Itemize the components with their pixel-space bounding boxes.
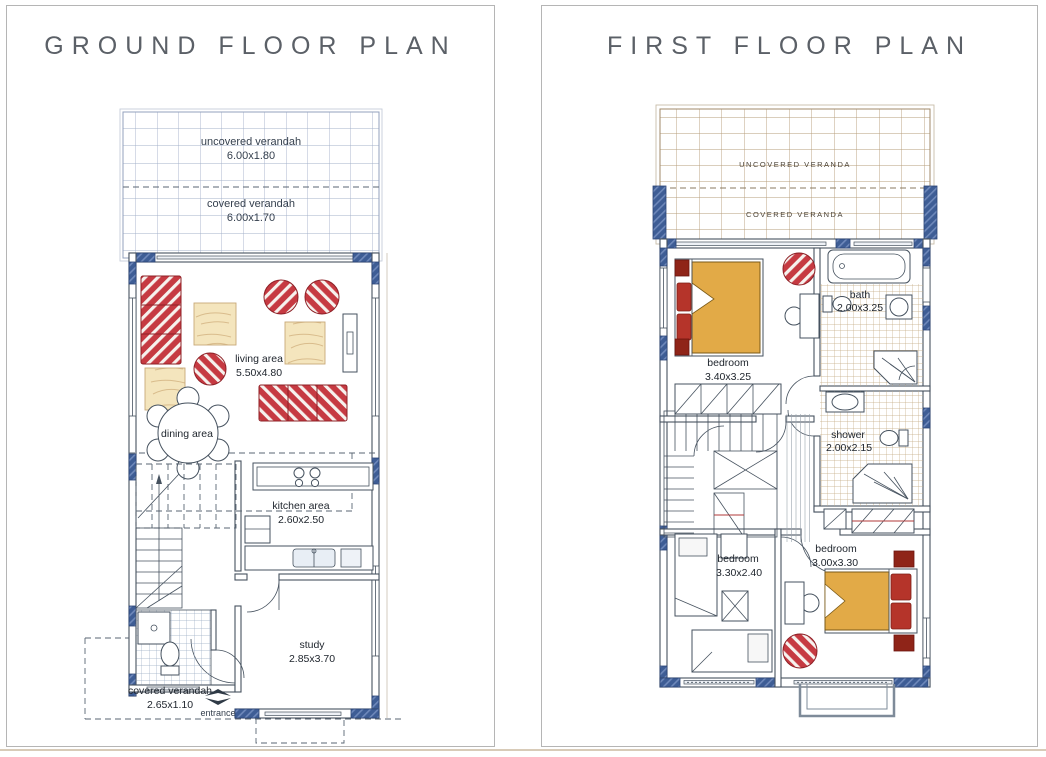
shower-size: 2.00x2.15 (826, 442, 872, 454)
entrance-label: entrance (200, 708, 235, 718)
first-veranda: UNCOVERED VERANDA COVERED VERANDA (653, 105, 937, 244)
dining-area-label: dining area (161, 428, 213, 440)
bedroom-chair (783, 253, 815, 285)
wardrobe (675, 384, 781, 414)
bedroom-left-size: 3.30x2.40 (716, 567, 762, 579)
tv-cabinet (343, 314, 357, 372)
armchair-round (194, 353, 226, 385)
ground-kitchen: kitchen area 2.60x2.50 (245, 463, 373, 570)
bedroom-right-label: bedroom (815, 543, 857, 555)
sofa-left (141, 276, 181, 364)
front-verandah-size: 2.65x1.10 (147, 699, 193, 711)
stove-burner (294, 468, 304, 478)
sofa-bottom (259, 385, 347, 421)
bedroom-left-label: bedroom (717, 553, 759, 565)
covered-verandah-size: 6.00x1.70 (227, 212, 275, 224)
shower-tray (853, 464, 912, 503)
bath-label: bath (850, 289, 871, 301)
bath-size: 2.00x3.25 (837, 302, 883, 314)
ground-wc (136, 610, 211, 685)
first-bath: bath 2.00x3.25 (820, 250, 923, 386)
bath-toilet (823, 296, 832, 312)
ground-verandah-top: uncovered verandah 6.00x1.80 covered ver… (120, 109, 382, 261)
ground-living-area: living area 5.50x4.80 (141, 276, 357, 421)
study-label: study (299, 639, 325, 651)
bedroom-right-chair (783, 634, 817, 668)
first-shower-room: shower 2.00x2.15 (820, 391, 923, 506)
scan-edge-line (0, 749, 1046, 751)
covered-verandah-label: covered verandah (207, 198, 295, 210)
front-verandah-label: covered verandah (128, 685, 212, 697)
kitchen-area-size: 2.60x2.50 (278, 514, 324, 526)
coffee-table (285, 322, 325, 364)
toilet (161, 642, 179, 666)
bedroom-main-label: bedroom (707, 357, 749, 369)
fridge (245, 516, 270, 543)
uncovered-verandah-size: 6.00x1.80 (227, 150, 275, 162)
study-size: 2.85x3.70 (289, 653, 335, 665)
double-bed-main (675, 259, 763, 356)
living-area-label: living area (235, 353, 283, 365)
first-floor-panel: UNCOVERED VERANDA COVERED VERANDA (541, 5, 1038, 747)
covered-veranda-label: COVERED VERANDA (746, 210, 844, 219)
square-table (194, 303, 236, 345)
armchair-top-right (305, 280, 339, 314)
living-area-size: 5.50x4.80 (236, 367, 282, 379)
first-floor-title: FIRST FLOOR PLAN (542, 32, 1037, 61)
uncovered-verandah-label: uncovered verandah (201, 136, 301, 148)
ground-floor-title: GROUND FLOOR PLAN (7, 32, 494, 61)
first-bedroom-left: bedroom 3.30x2.40 (675, 534, 772, 672)
ground-study: study 2.85x3.70 (289, 639, 335, 665)
uncovered-veranda-label: UNCOVERED VERANDA (739, 160, 851, 169)
first-bedroom-main: bedroom 3.40x3.25 (675, 253, 819, 414)
desk (800, 294, 819, 338)
dishwasher (341, 549, 361, 567)
ground-floor-panel: uncovered verandah 6.00x1.80 covered ver… (6, 5, 495, 747)
ground-stairs (136, 464, 236, 608)
kitchen-area-label: kitchen area (272, 500, 329, 512)
shower-toilet (899, 430, 908, 446)
balcony (800, 684, 894, 716)
shower-label: shower (831, 429, 865, 441)
shower-tray (138, 612, 170, 644)
ground-floor-plan: uncovered verandah 6.00x1.80 covered ver… (7, 6, 494, 746)
bedroom-right-size: 3.00x3.30 (812, 557, 858, 569)
first-floor-plan: UNCOVERED VERANDA COVERED VERANDA (542, 6, 1037, 746)
bedroom-main-size: 3.40x3.25 (705, 371, 751, 383)
desk-right (785, 582, 804, 624)
first-stairs (664, 411, 777, 537)
armchair-top-left (264, 280, 298, 314)
wardrobe-right (824, 509, 914, 533)
